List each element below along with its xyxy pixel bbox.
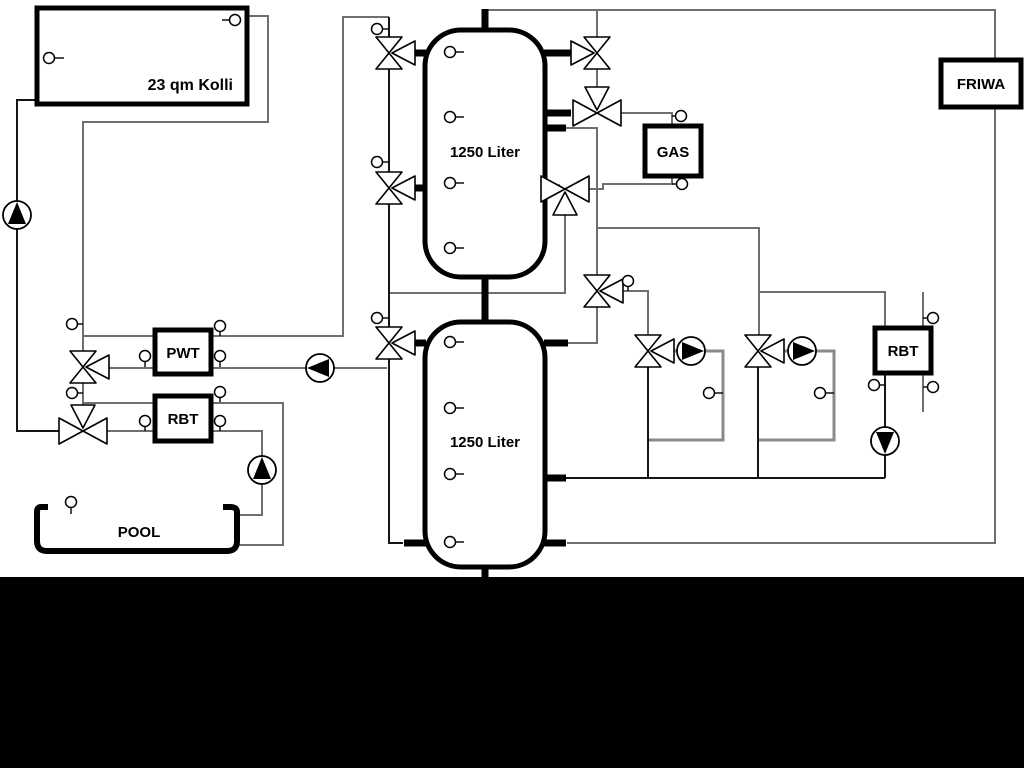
temp-sensor-icon: [66, 497, 77, 515]
temp-sensor-icon: [672, 179, 688, 190]
valve-tank1-left-top-icon: [376, 37, 415, 69]
valve-solar-supply-icon: [70, 351, 109, 383]
valve-solar-return-icon: [59, 405, 107, 444]
temp-sensor-icon: [372, 24, 390, 35]
hydraulic-schematic: 23 qm Kolli 1250 Liter 1250 Liter PWT RB…: [0, 0, 1024, 768]
pool-pump-icon: [248, 456, 276, 484]
temp-sensor-icon: [372, 157, 390, 168]
valve-heating-mixer-icon: [584, 275, 623, 307]
tank2-label: 1250 Liter: [450, 434, 520, 451]
pwt-secondary-pump-icon: [306, 354, 334, 382]
valve-circuit1-mixer-icon: [635, 335, 674, 367]
valve-gas-supply-icon: [573, 87, 621, 126]
bottom-black-bar: [0, 577, 1024, 768]
temp-sensor-icon: [672, 111, 687, 122]
heating-circuit-1-pump-icon: [677, 337, 705, 365]
collector-label: 23 qm Kolli: [148, 77, 233, 94]
solar-pump-icon: [3, 201, 31, 229]
temp-sensor-icon: [623, 276, 634, 292]
temp-sensor-icon: [215, 387, 226, 403]
pipe-segment: [389, 17, 403, 543]
valve-circuit2-mixer-icon: [745, 335, 784, 367]
pipe-segment: [623, 291, 648, 335]
temp-sensor-icon: [869, 380, 886, 391]
valve-tank2-left-top-icon: [376, 327, 415, 359]
valve-tank1-left-mid-icon: [376, 172, 415, 204]
temp-sensor-icon: [215, 351, 226, 368]
rbt-left-label: RBT: [168, 411, 199, 428]
pwt-label: PWT: [166, 345, 199, 362]
pipe-segment: [485, 10, 995, 543]
temp-sensor-icon: [704, 388, 724, 399]
temp-sensor-icon: [67, 388, 84, 399]
temp-sensor-icon: [140, 351, 151, 368]
rbt-right-pump-icon: [871, 427, 899, 455]
valve-gas-return-icon: [541, 176, 589, 215]
temp-sensor-icon: [215, 416, 226, 432]
temp-sensor-icon: [372, 313, 390, 324]
temp-sensor-icon: [140, 416, 151, 432]
temp-sensor-icon: [215, 321, 226, 337]
pipe-segment: [17, 100, 59, 431]
heating-circuit-2-pump-icon: [788, 337, 816, 365]
rbt-right-label: RBT: [888, 343, 919, 360]
temp-sensor-icon: [923, 313, 939, 324]
temp-sensor-icon: [923, 382, 939, 393]
friwa-label: FRIWA: [957, 76, 1005, 93]
pipe-segment: [759, 292, 885, 328]
gas-label: GAS: [657, 144, 690, 161]
pool-label: POOL: [118, 524, 161, 541]
valve-tank1-right-top-icon: [571, 37, 610, 69]
pipe-segment: [99, 431, 262, 515]
temp-sensor-icon: [67, 319, 84, 330]
tank1-label: 1250 Liter: [450, 144, 520, 161]
temp-sensor-icon: [815, 388, 835, 399]
pipe-segment: [567, 307, 597, 343]
